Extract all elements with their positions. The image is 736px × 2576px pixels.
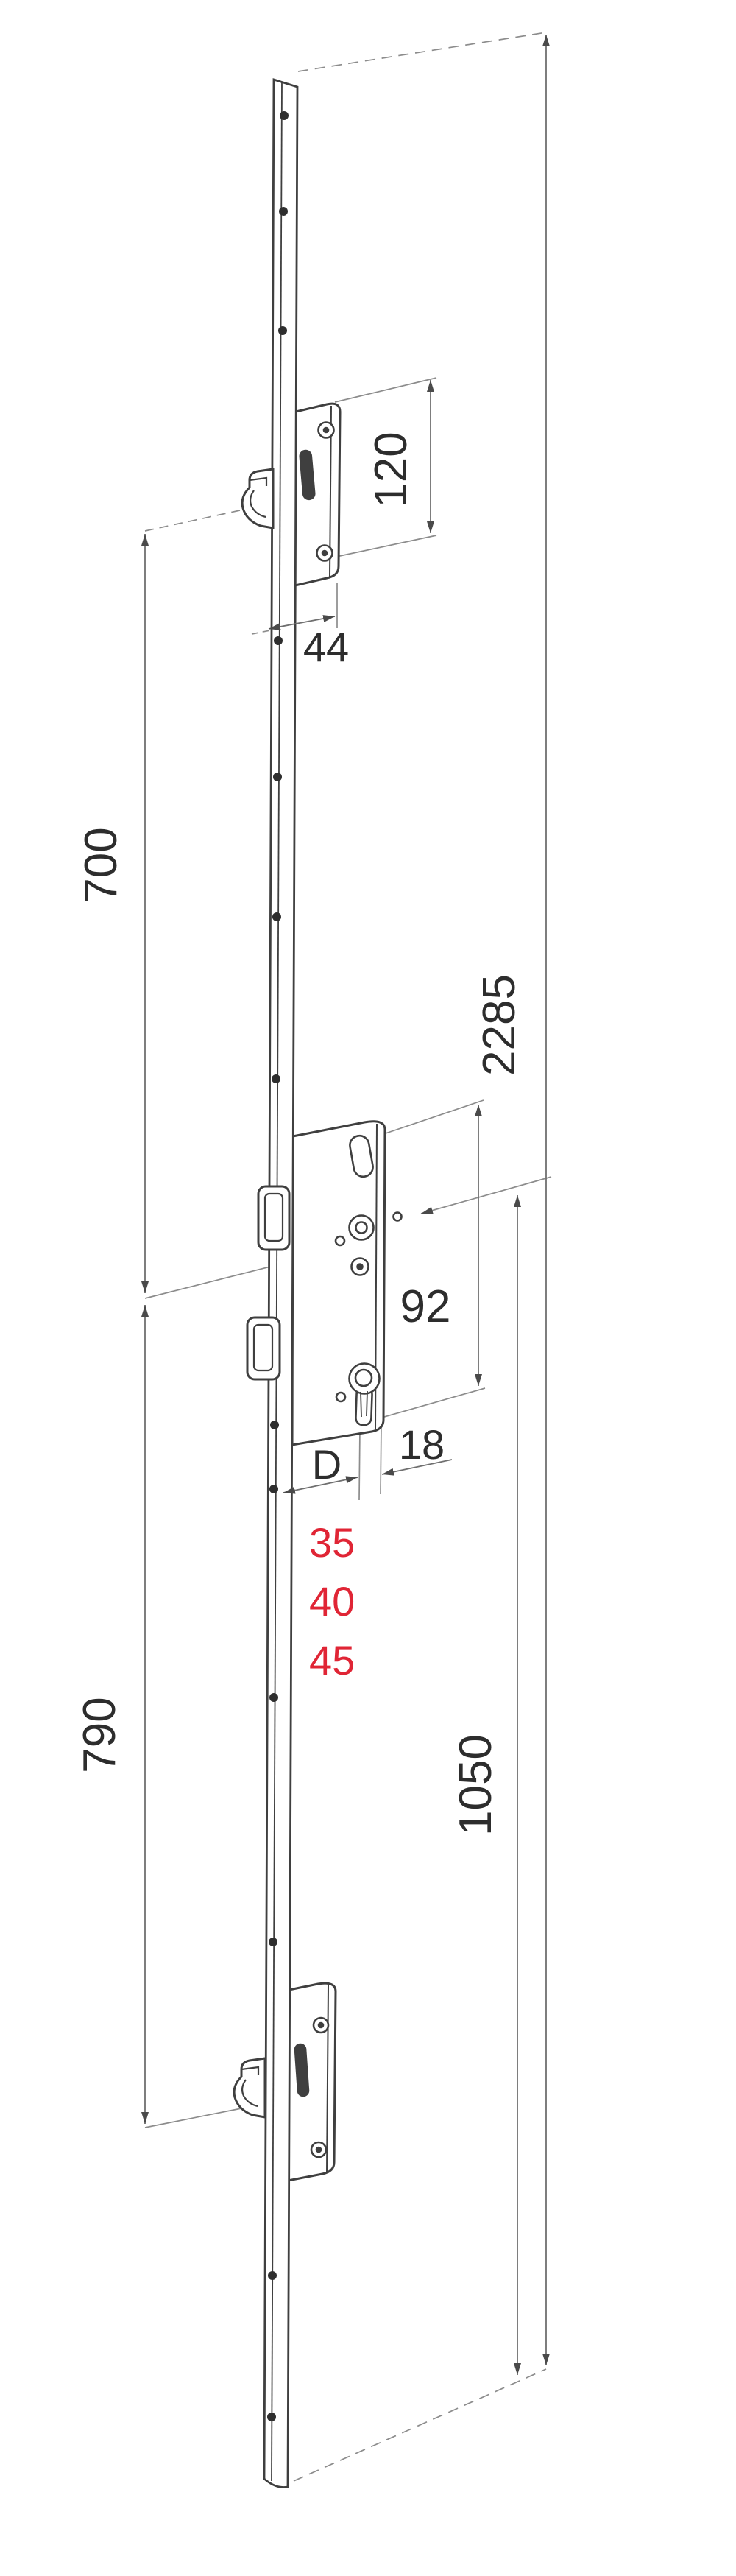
screw-hole <box>269 1938 277 1946</box>
screw-hole <box>279 207 288 216</box>
ref-follower <box>379 1100 484 1136</box>
screw-hole <box>269 1485 278 1493</box>
hub-side-hole <box>394 1213 402 1221</box>
dim-label-2285: 2285 <box>474 974 525 1076</box>
screw-hole <box>267 2413 276 2421</box>
hub-lower-dot <box>358 1264 363 1270</box>
lock-drawing-canvas: 120 44 700 2285 92 18 D 790 1050 35 40 4… <box>0 0 736 2576</box>
cylinder-side-hole <box>336 1393 345 1401</box>
screw-hole <box>274 636 283 645</box>
case-screw-center <box>324 428 328 432</box>
ref-44-dash <box>252 630 274 634</box>
screw-hole <box>272 912 281 921</box>
screw-hole <box>269 1693 278 1702</box>
ref-bottom-total <box>294 2369 546 2481</box>
ref-case-top <box>335 378 436 402</box>
ref-top-hook <box>145 507 257 531</box>
handle-hub-square <box>356 1222 367 1234</box>
dim-label-1050: 1050 <box>450 1734 501 1836</box>
screw-hole <box>280 111 289 120</box>
backset-option-35: 35 <box>309 1519 355 1566</box>
hub-side-hole <box>336 1236 344 1245</box>
dim-label-18: 18 <box>399 1421 445 1468</box>
backset-option-40: 40 <box>309 1578 355 1625</box>
dim-label-D: D <box>312 1441 342 1488</box>
multipoint-lock-drawing: 120 44 700 2285 92 18 D 790 1050 35 40 4… <box>0 0 736 2576</box>
dim-label-700: 700 <box>76 827 127 903</box>
ref-center-cam <box>145 1262 288 1298</box>
top-hook-bolt <box>242 469 273 528</box>
dim-label-120: 120 <box>366 432 417 507</box>
screw-hole <box>272 1074 280 1083</box>
screw-hole <box>270 1421 279 1429</box>
screw-hole <box>278 326 287 335</box>
case-screw-center <box>322 551 327 555</box>
backset-option-45: 45 <box>309 1637 355 1683</box>
ref-hub-level <box>421 1177 551 1214</box>
roller-cam-upper <box>258 1186 289 1250</box>
dimension-labels: 120 44 700 2285 92 18 D 790 1050 35 40 4… <box>74 432 525 1836</box>
case-screw-center <box>316 2147 321 2152</box>
ref-bottom-hook <box>145 2107 249 2128</box>
case-screw-center <box>319 2023 323 2027</box>
lock-cases <box>284 404 385 2181</box>
dim-label-92: 92 <box>400 1281 451 1332</box>
dim-label-44: 44 <box>303 624 349 670</box>
dim-label-790: 790 <box>74 1697 125 1773</box>
bottom-lock-case <box>284 1983 336 2181</box>
roller-cam-lower <box>247 1317 280 1379</box>
screw-hole <box>273 773 282 781</box>
tick-cylinder-axis <box>359 1427 360 1500</box>
ref-case-bottom <box>333 535 436 557</box>
ref-top-total <box>298 32 546 71</box>
screw-hole <box>268 2271 277 2280</box>
backset-options: 35 40 45 <box>309 1519 355 1683</box>
tick-case-edge <box>381 1424 381 1494</box>
